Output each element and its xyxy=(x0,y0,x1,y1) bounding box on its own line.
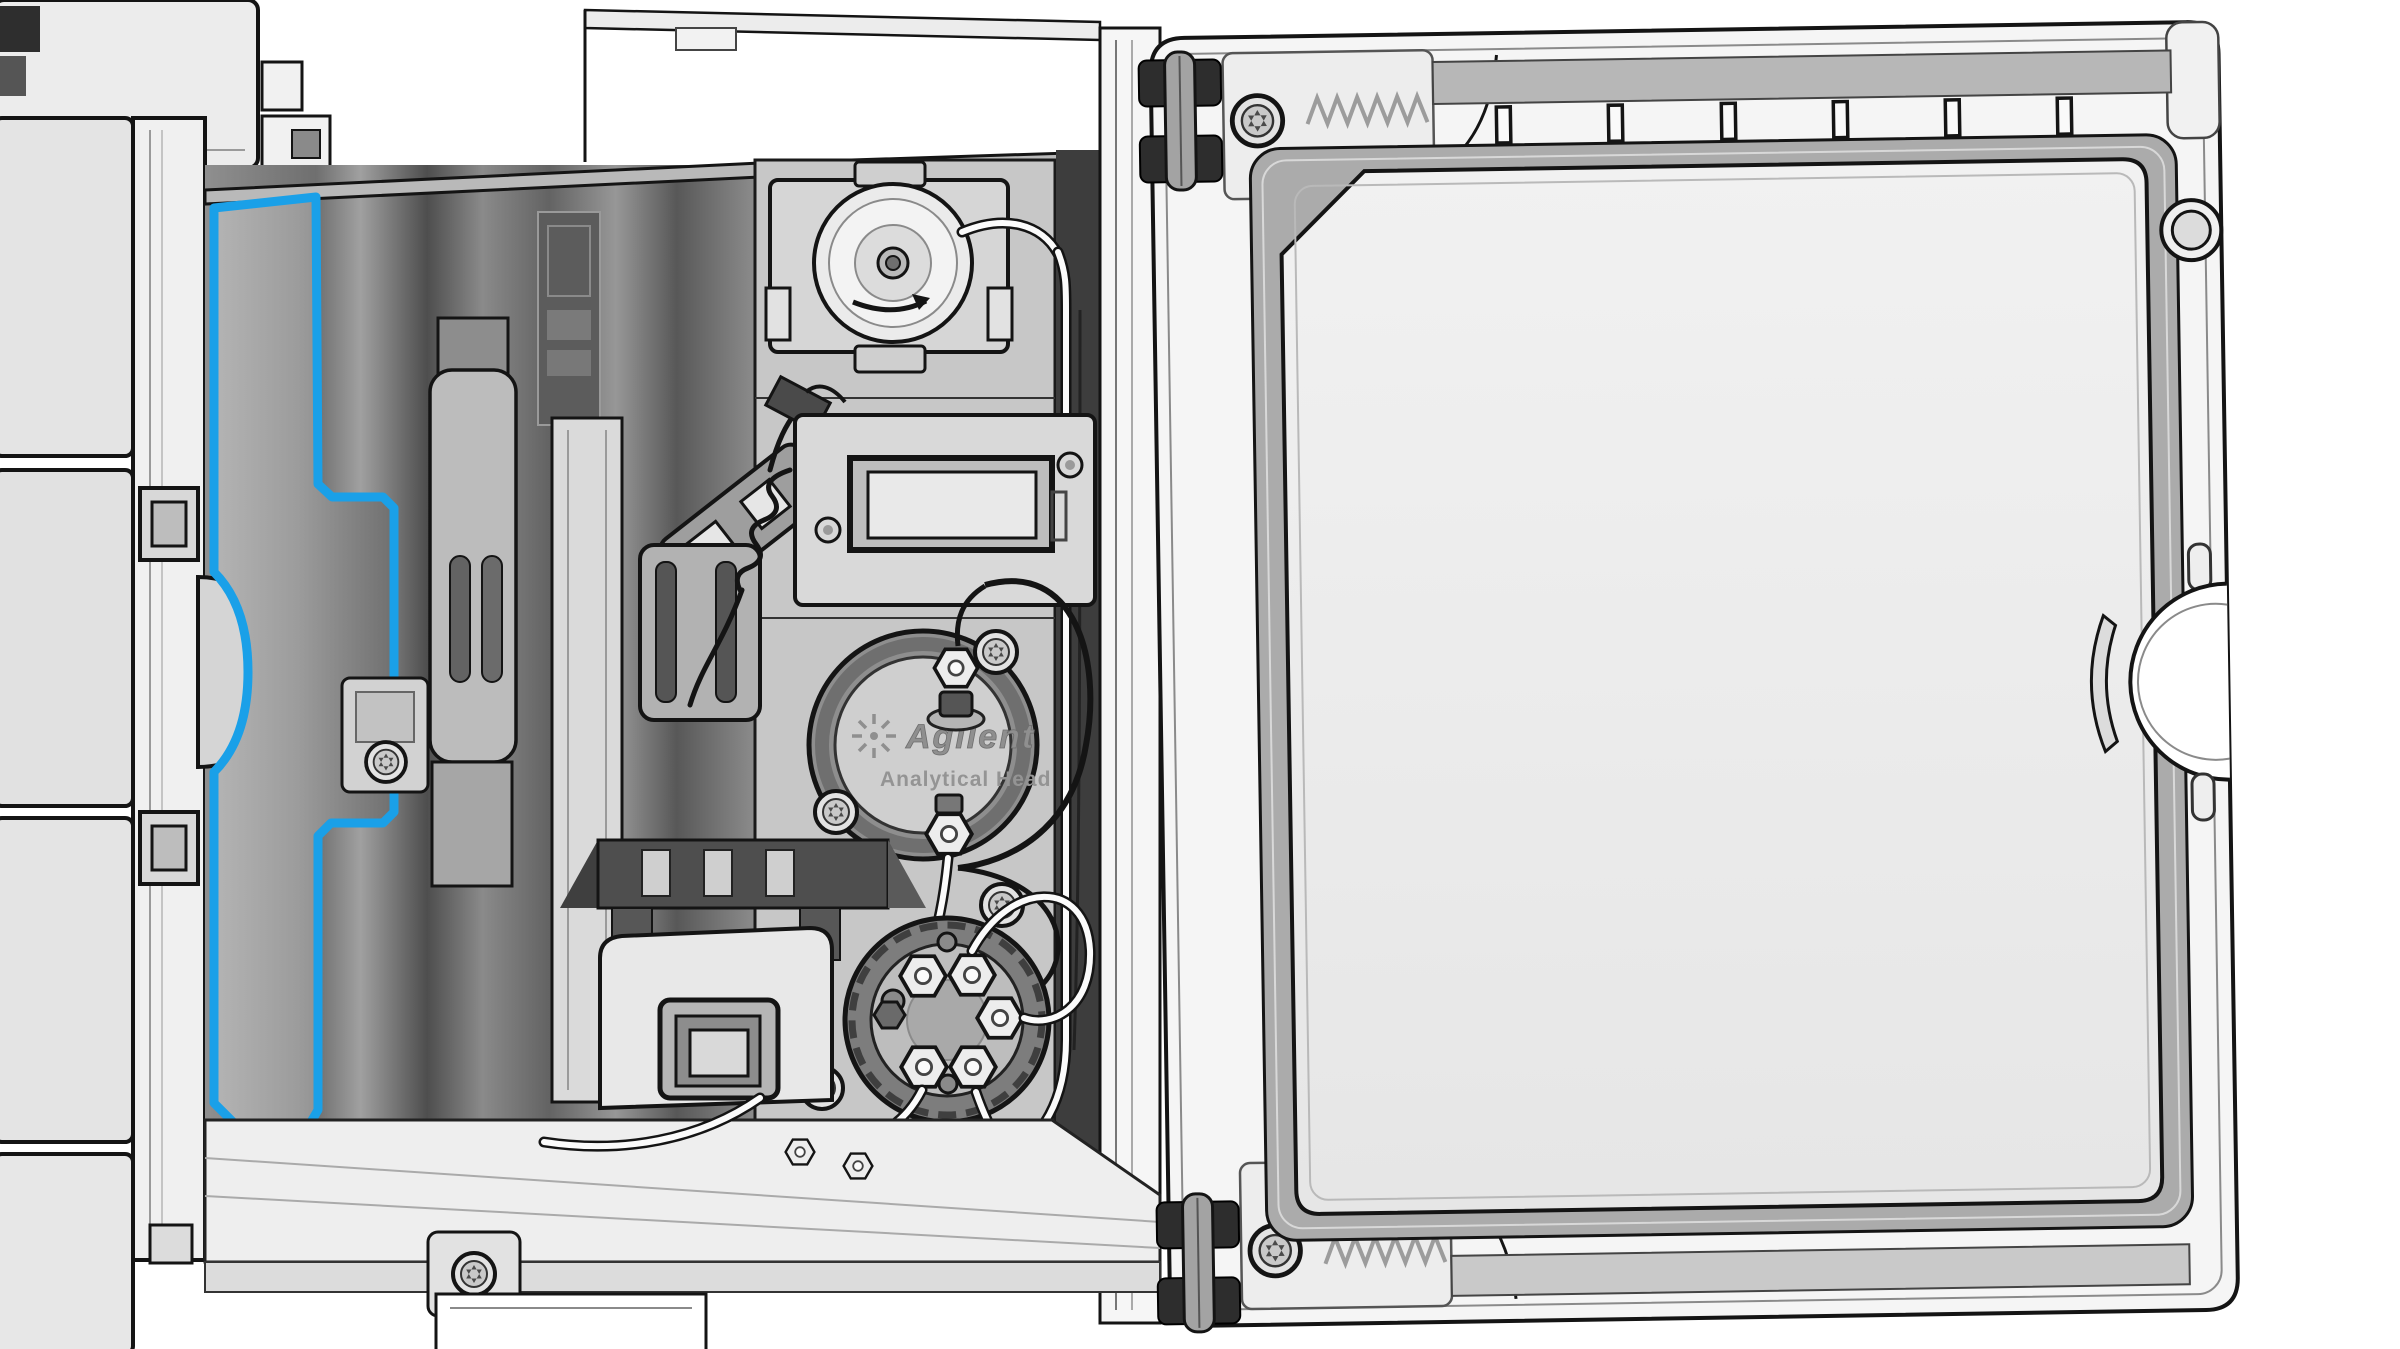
vent-slot xyxy=(1833,102,1848,138)
tray-fitting-icon xyxy=(786,1140,815,1165)
left-drawer-panel-3 xyxy=(0,818,133,1142)
front-door xyxy=(1138,22,2238,1333)
valve-port-fitting-icon xyxy=(949,955,995,995)
module-corner-block-2 xyxy=(0,56,26,96)
valve-port-fitting-icon xyxy=(977,998,1023,1038)
torx-screw-icon xyxy=(1232,95,1283,146)
vent-slot xyxy=(1945,100,1960,136)
rating-label-plate xyxy=(538,212,600,425)
support-arm xyxy=(430,318,516,886)
module-corner-block xyxy=(0,6,40,52)
valve-port-fitting-icon xyxy=(950,1047,996,1087)
vent-slot xyxy=(2057,98,2072,134)
latch-block-small xyxy=(262,62,302,110)
left-drawer-panel-1 xyxy=(0,118,133,456)
torx-screw-icon xyxy=(815,791,857,833)
left-drawer-panel-2 xyxy=(0,470,133,806)
door-window-pane xyxy=(1280,159,2162,1214)
vent-slot xyxy=(1608,105,1623,141)
handle-pin-bottom xyxy=(2192,774,2215,820)
chassis-top-notch xyxy=(676,28,736,50)
valve-center-hex xyxy=(874,1002,905,1028)
vent-slot xyxy=(1721,103,1736,139)
tray-fitting-icon xyxy=(844,1154,873,1179)
sensor-panel xyxy=(795,415,1095,605)
torx-screw-icon xyxy=(366,742,406,782)
lower-module-edge xyxy=(436,1294,706,1349)
left-drawer-panel-4 xyxy=(0,1154,133,1349)
valve-port-fitting-icon xyxy=(901,1047,947,1087)
door-corner-cap xyxy=(2166,22,2220,139)
valve-port-fitting-icon xyxy=(900,956,946,996)
sensor-window xyxy=(868,472,1036,538)
inlet-fitting-icon xyxy=(934,649,977,686)
line-art-svg: Agilent Analytical Head xyxy=(0,0,2400,1349)
hinge-pillar xyxy=(1100,28,1160,1323)
outlet-fitting-icon xyxy=(926,814,972,854)
torx-screw-icon xyxy=(453,1253,495,1295)
pump-head-label-text: Analytical Head xyxy=(880,768,1051,791)
left-door-edge xyxy=(133,118,205,1260)
torx-screw-icon xyxy=(975,631,1017,673)
instrument-illustration: Agilent Analytical Head xyxy=(0,0,2400,1349)
leak-tray xyxy=(205,1098,1160,1349)
handle-pin-top xyxy=(2188,544,2211,590)
left-bracket xyxy=(342,678,428,792)
latch-bottom xyxy=(150,1225,192,1263)
base-front-edge xyxy=(205,1262,1160,1292)
chassis-top-edge xyxy=(585,10,1100,40)
vent-slot xyxy=(1496,107,1511,143)
